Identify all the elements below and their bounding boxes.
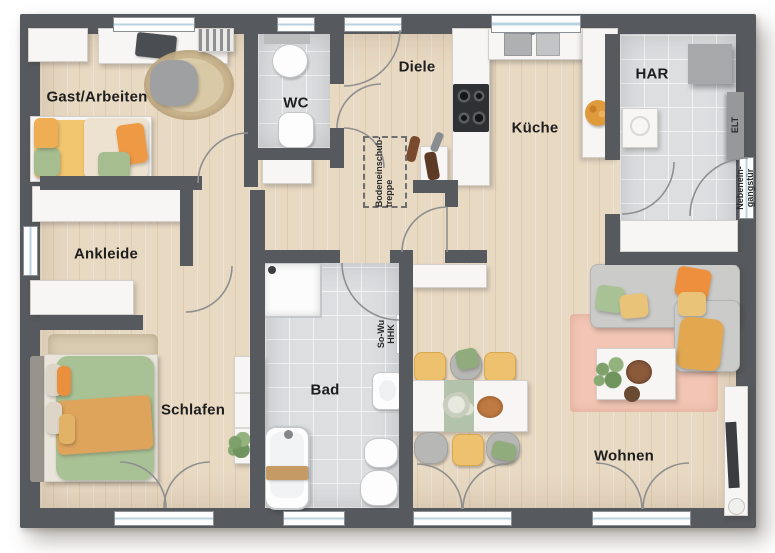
- decor-vase: [624, 386, 640, 402]
- wardrobe-top: [32, 186, 182, 222]
- dining-chair: [414, 352, 446, 382]
- dining-chair: [414, 432, 448, 464]
- wall: [330, 128, 344, 168]
- daybed-pillow-green: [34, 148, 60, 176]
- wall: [40, 315, 143, 330]
- room-label-bathroom: Bad: [311, 382, 340, 399]
- wall: [605, 252, 756, 265]
- potted-plant: [228, 432, 252, 458]
- bathtub-caddy: [266, 466, 308, 480]
- har-cabinet: [620, 220, 738, 252]
- room-label-wc: WC: [283, 95, 308, 112]
- window-bathroom: [283, 511, 345, 526]
- water-heater: [688, 44, 732, 84]
- guestroom-cabinet: [28, 28, 88, 62]
- room-label-hall: Diele: [399, 59, 436, 76]
- wall: [445, 250, 487, 263]
- shower-head: [268, 266, 276, 274]
- dining-chair: [484, 352, 516, 382]
- wall: [399, 250, 413, 508]
- floor-plan: Gast/Arbeiten WC Diele Küche HAR Ankleid…: [0, 0, 775, 553]
- wall: [250, 190, 265, 508]
- entrance-door: [344, 17, 402, 32]
- floor-vase: [728, 498, 745, 515]
- daybed-pillow-yellow: [34, 118, 58, 148]
- window-kitchen: [491, 15, 581, 33]
- window-wc: [277, 17, 315, 32]
- room-label-bedroom: Schlafen: [161, 402, 225, 419]
- hall-cabinet: [262, 156, 312, 184]
- washbasin: [278, 112, 314, 148]
- wall: [445, 180, 458, 207]
- annotation-heater: So-Wu HHK: [377, 320, 397, 348]
- room-label-living: Wohnen: [594, 448, 654, 465]
- kitchen-sink: [504, 33, 532, 56]
- bookshelf: [198, 28, 234, 52]
- room-label-guestroom: Gast/Arbeiten: [47, 89, 148, 106]
- desk-chair: [150, 60, 198, 106]
- cooktop: [453, 84, 489, 132]
- table-bowl: [477, 396, 503, 418]
- bidet: [364, 438, 398, 468]
- table-flowers: [442, 392, 478, 420]
- wardrobe-bottom: [30, 280, 134, 315]
- french-door-living-2: [592, 511, 691, 526]
- room-label-kitchen: Küche: [512, 120, 559, 137]
- wall: [250, 250, 340, 263]
- room-label-har: HAR: [635, 66, 668, 83]
- washbasin-bowl: [379, 380, 396, 401]
- sofa-pillow-yellow: [678, 292, 706, 316]
- bathtub-faucet: [284, 430, 293, 439]
- toilet-cistern: [264, 34, 310, 44]
- bed-pillow-yellow: [59, 414, 75, 444]
- french-door-living-1: [413, 511, 512, 526]
- sofa-pillow-yellow: [619, 293, 649, 320]
- toilet: [272, 44, 308, 78]
- window-dressing-room: [23, 226, 38, 276]
- bed-pillow-orange: [57, 366, 71, 396]
- bathroom-toilet: [360, 470, 398, 506]
- wall: [40, 176, 202, 190]
- washing-machine-door: [630, 116, 650, 136]
- wall: [330, 34, 344, 84]
- bathtub-basin: [270, 432, 304, 498]
- window-guestroom: [113, 17, 195, 32]
- wall: [180, 190, 193, 266]
- wall: [605, 214, 620, 252]
- sideboard: [412, 264, 487, 288]
- wall: [244, 34, 258, 187]
- annotation-side-entrance: Nebenein- gangstür: [736, 166, 756, 210]
- wall: [258, 148, 330, 160]
- decor-bowl: [626, 360, 652, 384]
- annotation-attic-stairs: Bodeneinschub- treppe: [375, 137, 395, 208]
- french-door-bedroom: [114, 511, 214, 526]
- kitchen-sink-drainer: [536, 33, 560, 56]
- wall: [605, 34, 620, 160]
- dining-chair: [452, 434, 484, 466]
- sofa-throw: [675, 316, 724, 372]
- room-label-dressing: Ankleide: [74, 246, 138, 263]
- daybed-pillow-green: [98, 152, 130, 178]
- annotation-electrical: ELT: [731, 117, 741, 133]
